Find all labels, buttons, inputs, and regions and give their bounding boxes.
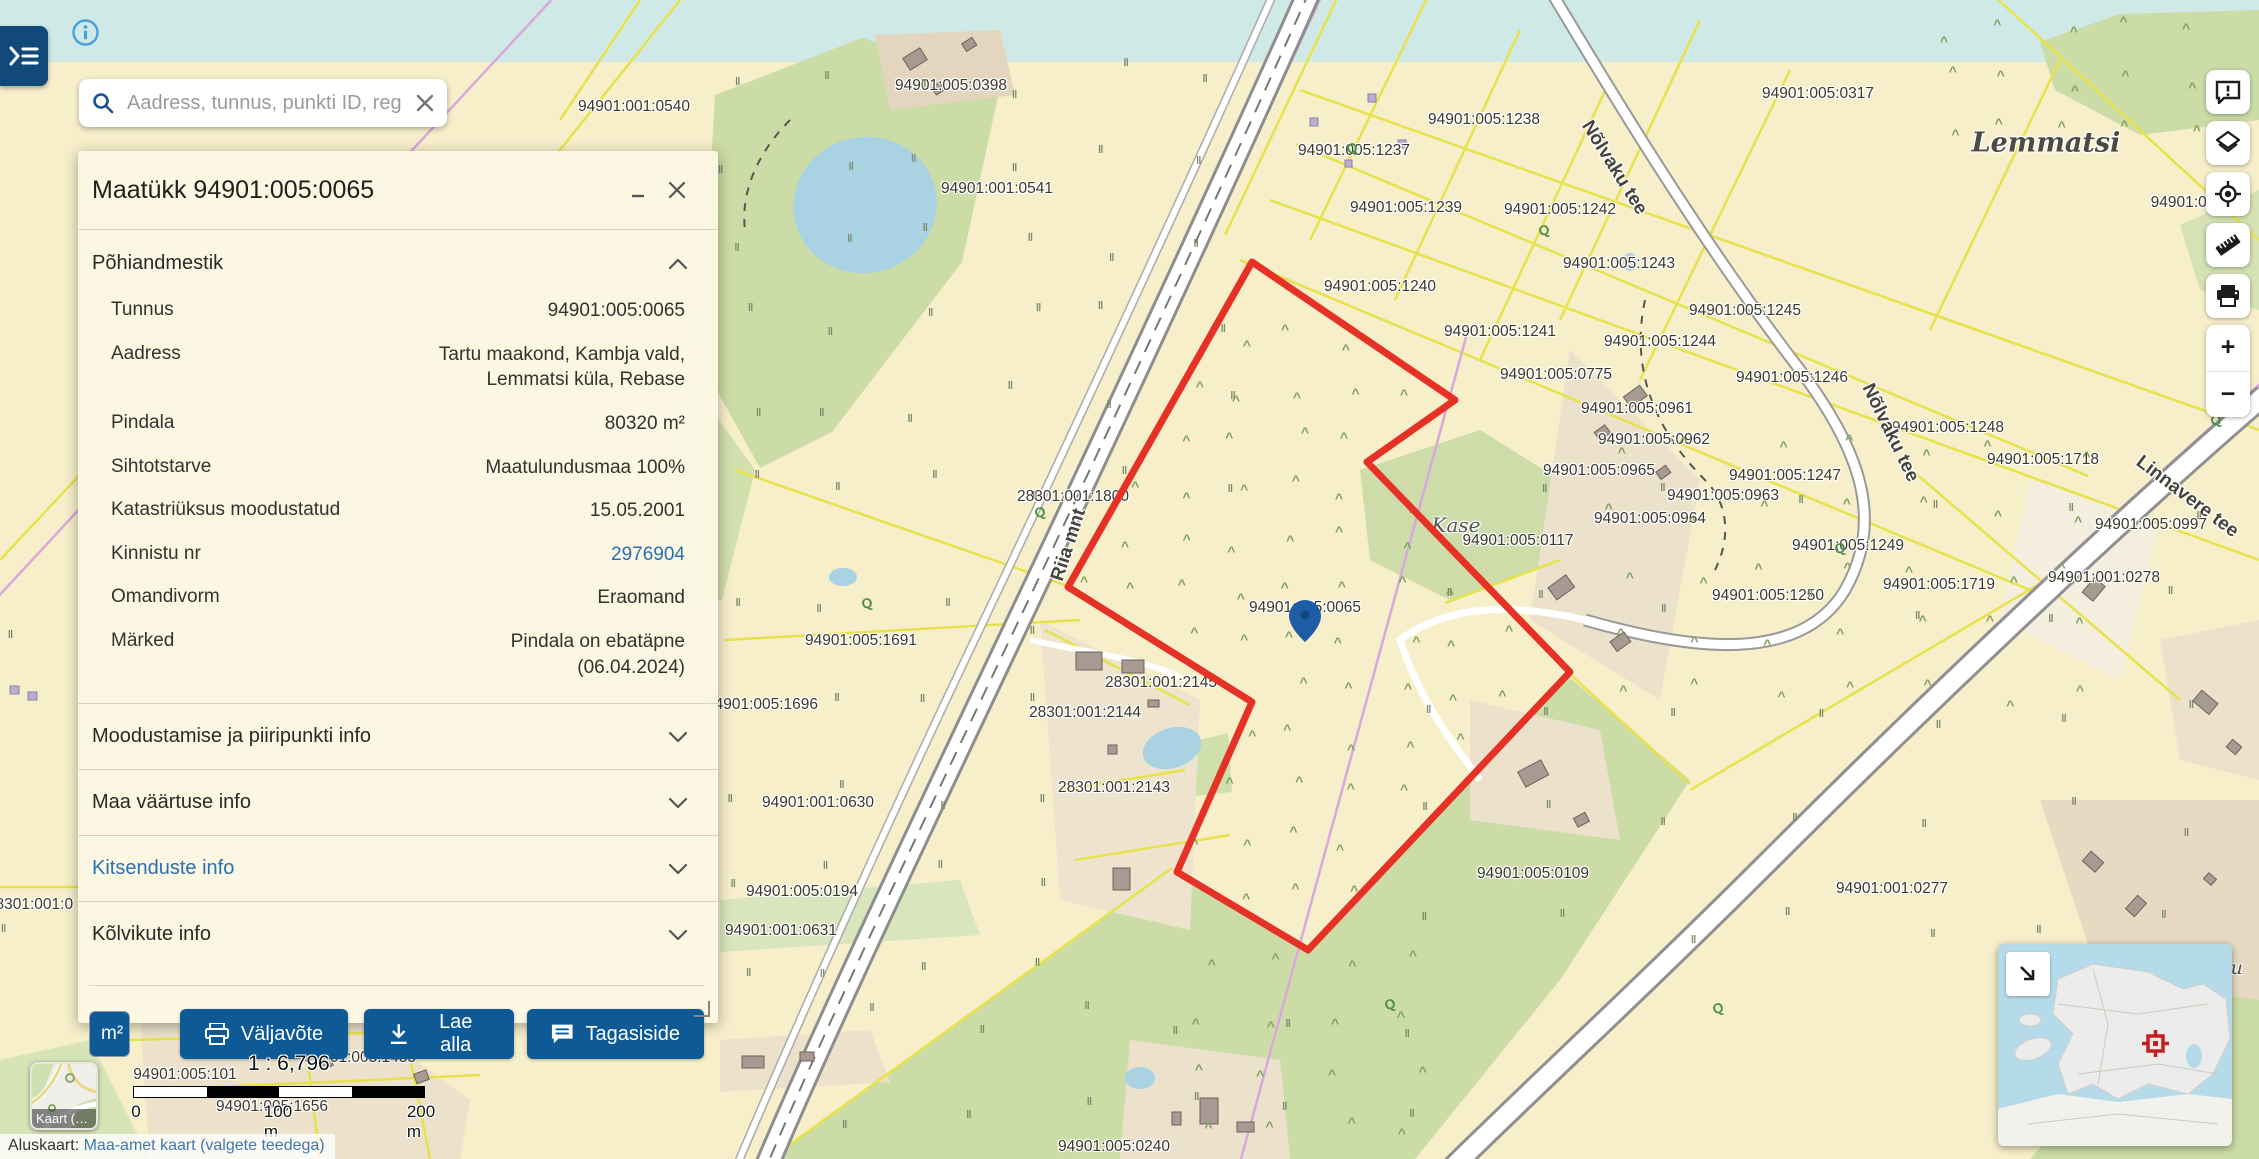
chevron-down-icon xyxy=(668,929,688,941)
field-value: Maatulundusmaa 100% xyxy=(485,455,685,481)
accordion-kitsenduste-info[interactable]: Kitsenduste info xyxy=(78,835,718,901)
field-value: 94901:005:0065 xyxy=(548,298,685,324)
parcel-info-panel: Maatükk 94901:005:0065 Põhiandmestik Tun… xyxy=(78,151,718,1023)
feedback-icon xyxy=(551,1023,573,1045)
basemap-button-label: Kaart (… xyxy=(32,1109,96,1128)
chevron-down-icon xyxy=(668,797,688,809)
print-tool-button[interactable] xyxy=(2206,274,2250,318)
close-button[interactable] xyxy=(662,175,692,205)
panel-title: Maatükk 94901:005:0065 xyxy=(92,176,616,205)
zoom-in-button[interactable]: + xyxy=(2206,325,2250,372)
field-row: SihtotstarveMaatulundusmaa 100% xyxy=(78,446,718,490)
field-value: 15.05.2001 xyxy=(590,498,685,524)
section-pohiandmestik[interactable]: Põhiandmestik xyxy=(78,229,718,289)
locate-icon xyxy=(2214,180,2242,208)
chevron-down-icon xyxy=(668,731,688,743)
basemap-attribution-link[interactable]: Maa-amet kaart (valgete teedega) xyxy=(84,1137,325,1154)
map-attribution: Aluskaart: Maa-amet kaart (valgete teede… xyxy=(0,1134,335,1159)
app-root: 94901:001:054094901:005:039894901:005:12… xyxy=(0,0,2259,1159)
feedback-tool-button[interactable] xyxy=(2206,70,2250,114)
sidebar-expand-icon xyxy=(9,44,39,68)
info-button[interactable] xyxy=(72,19,99,46)
minimap-collapse-button[interactable] xyxy=(2006,952,2050,996)
field-value: Tartu maakond, Kambja vald,Lemmatsi küla… xyxy=(439,342,685,393)
layers-tool-button[interactable] xyxy=(2206,121,2250,165)
search-bar[interactable] xyxy=(79,79,447,127)
minimize-button[interactable] xyxy=(624,175,654,205)
accordion-moodustamise-info[interactable]: Moodustamise ja piiripunkti info xyxy=(78,703,718,769)
search-icon xyxy=(91,91,115,115)
chevron-down-icon xyxy=(668,863,688,875)
panel-resize-handle[interactable] xyxy=(694,1001,710,1017)
close-icon xyxy=(666,179,688,201)
minimize-icon xyxy=(629,180,649,200)
zoom-out-button[interactable]: − xyxy=(2206,372,2250,418)
locate-tool-button[interactable] xyxy=(2206,172,2250,216)
info-icon xyxy=(72,19,99,46)
accordion-kolvikute-info[interactable]: Kõlvikute info xyxy=(78,901,718,967)
field-row: OmandivormEraomand xyxy=(78,576,718,620)
measure-tool-button[interactable] xyxy=(2206,223,2250,267)
close-icon[interactable] xyxy=(415,93,435,113)
chevron-up-icon xyxy=(668,258,688,270)
location-pin-icon xyxy=(1288,599,1322,648)
field-value: 80320 m² xyxy=(605,411,685,437)
field-value: Eraomand xyxy=(597,585,685,611)
sidebar-toggle-button[interactable] xyxy=(0,26,48,86)
overview-minimap[interactable] xyxy=(1998,944,2232,1146)
printer-icon xyxy=(2215,284,2241,308)
valjavote-button[interactable]: Väljavõte xyxy=(180,1009,348,1059)
printer-icon xyxy=(205,1023,229,1045)
download-icon xyxy=(388,1022,410,1046)
lae-alla-button[interactable]: Lae alla xyxy=(364,1009,514,1059)
arrow-southeast-icon xyxy=(2017,963,2039,985)
field-row: Pindala80320 m² xyxy=(78,402,718,446)
field-row: Märked Pindala on ebatäpne(06.04.2024) xyxy=(78,620,718,689)
comment-exclamation-icon xyxy=(2215,80,2241,104)
field-row: Aadress Tartu maakond, Kambja vald,Lemma… xyxy=(78,333,718,402)
ruler-icon xyxy=(2214,231,2242,259)
zoom-controls: + − xyxy=(2206,325,2250,417)
unit-toggle[interactable]: m² ha xyxy=(89,1011,130,1057)
accordion-maa-vaartuse-info[interactable]: Maa väärtuse info xyxy=(78,769,718,835)
field-row: Kinnistu nr2976904 xyxy=(78,533,718,577)
unit-m2[interactable]: m² xyxy=(90,1012,130,1056)
kinnistu-link[interactable]: 2976904 xyxy=(611,542,685,568)
field-row: Katastriüksus moodustatud15.05.2001 xyxy=(78,489,718,533)
tagasiside-button[interactable]: Tagasiside xyxy=(527,1009,704,1059)
layers-icon xyxy=(2215,130,2241,156)
field-row: Tunnus94901:005:0065 xyxy=(78,289,718,333)
field-value: Pindala on ebatäpne(06.04.2024) xyxy=(511,629,685,680)
search-input[interactable] xyxy=(125,91,405,116)
basemap-switcher-button[interactable]: Kaart (… xyxy=(30,1062,98,1130)
